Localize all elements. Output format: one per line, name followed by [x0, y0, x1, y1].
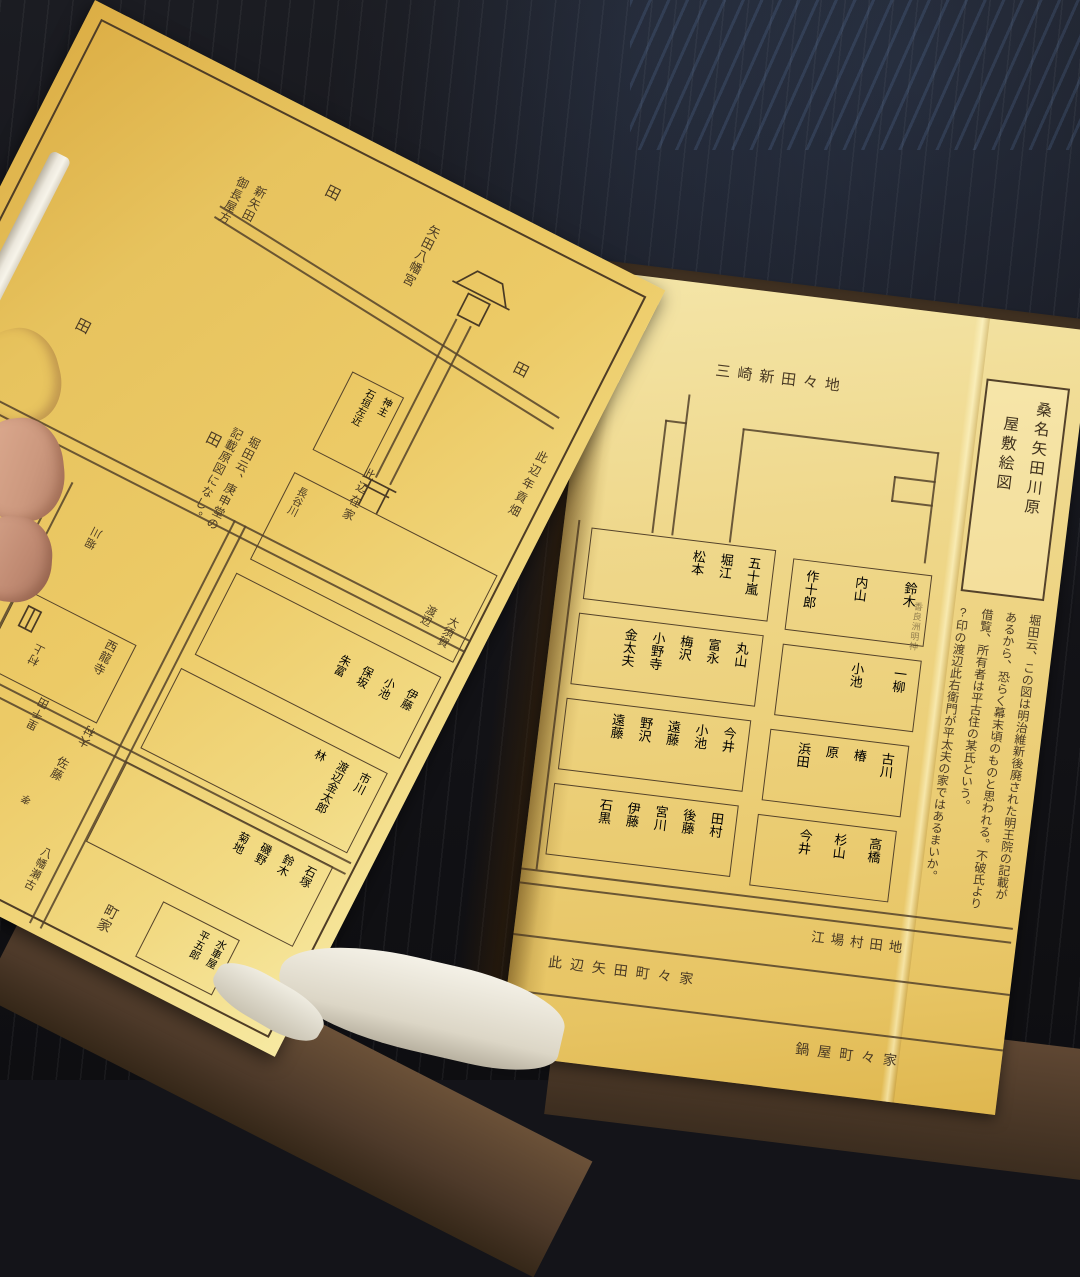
resident-name: 田村 [701, 811, 726, 867]
resident-name: 小池 [842, 661, 867, 717]
resident-name: 小野寺 [643, 630, 668, 686]
resident-name: 金太夫 [615, 627, 640, 683]
resident-name: 石黒 [590, 797, 615, 853]
eba-village-fields-label: 江場村田地 [810, 925, 909, 957]
hand-holding-page [0, 310, 90, 600]
resident-name: 今井 [790, 828, 815, 884]
name-box-row2-right: 一柳小池 [774, 644, 922, 733]
hasegawa-name: 長谷川 [284, 484, 312, 519]
plot-line [891, 476, 896, 502]
resident-name: 遠藤 [603, 712, 628, 768]
resident-name: 堀江 [711, 552, 736, 608]
resident-name: 丸山 [726, 641, 751, 697]
resident-name: 原 [816, 744, 841, 800]
plot-line [891, 500, 933, 507]
road-line [521, 990, 1003, 1051]
name-box-row3-left: 今井小池遠藤野沢遠藤 [558, 698, 751, 792]
resident-name: 松本 [683, 549, 708, 605]
resident-name: 作十郎 [797, 569, 822, 625]
name-box-row2-left: 丸山富永梅沢小野寺金太夫 [570, 613, 763, 707]
plot-line [665, 420, 687, 425]
resident-name: 伊藤 [618, 801, 643, 857]
area-label-misaki-shinden: 三崎新田々地 [714, 360, 848, 397]
name-box-row4-left: 田村後藤宮川伊藤石黒 [545, 783, 738, 877]
resident-name: 一柳 [884, 666, 909, 722]
yada-townhouses-label: 此辺矢田町々家 [547, 952, 702, 991]
resident-name: 今井 [714, 726, 739, 782]
resident-name: 小池 [686, 722, 711, 778]
plot-line [894, 476, 936, 483]
resident-name: 大須賀 [433, 613, 462, 650]
name-box-row1-left: 五十嵐堀江松本 [583, 528, 776, 622]
resident-name: 椿 [844, 748, 869, 804]
finger [0, 513, 55, 604]
plot-line [743, 428, 940, 454]
plot-line [651, 420, 667, 533]
resident-name: 五十嵐 [739, 555, 764, 611]
resident-name: 渡辺 [411, 602, 440, 639]
table-grain-highlight [630, 0, 1080, 150]
photo-of-open-book: { "scene": { "description": "Photograph … [0, 0, 1080, 1080]
resident-name: 後藤 [674, 807, 699, 863]
resident-name: 宮川 [646, 804, 671, 860]
resident-name: 富永 [698, 637, 723, 693]
resident-name: 梅沢 [671, 634, 696, 690]
plot-line [924, 452, 940, 563]
resident-name: 浜田 [789, 741, 814, 797]
resident-name: 内山 [846, 575, 871, 631]
finger [0, 320, 70, 432]
plot-line [729, 428, 745, 542]
resident-name: 古川 [872, 751, 897, 807]
resident-name: 遠藤 [658, 719, 683, 775]
finger [0, 414, 69, 526]
resident-name: 野沢 [630, 715, 655, 771]
resident-name: 高橋 [859, 836, 884, 892]
name-box-row3-right: 古川椿原浜田 [762, 729, 910, 818]
plot-line [671, 394, 690, 535]
name-box-row4-right: 高橋杉山今井 [749, 814, 897, 903]
resident-name: 杉山 [825, 832, 850, 888]
